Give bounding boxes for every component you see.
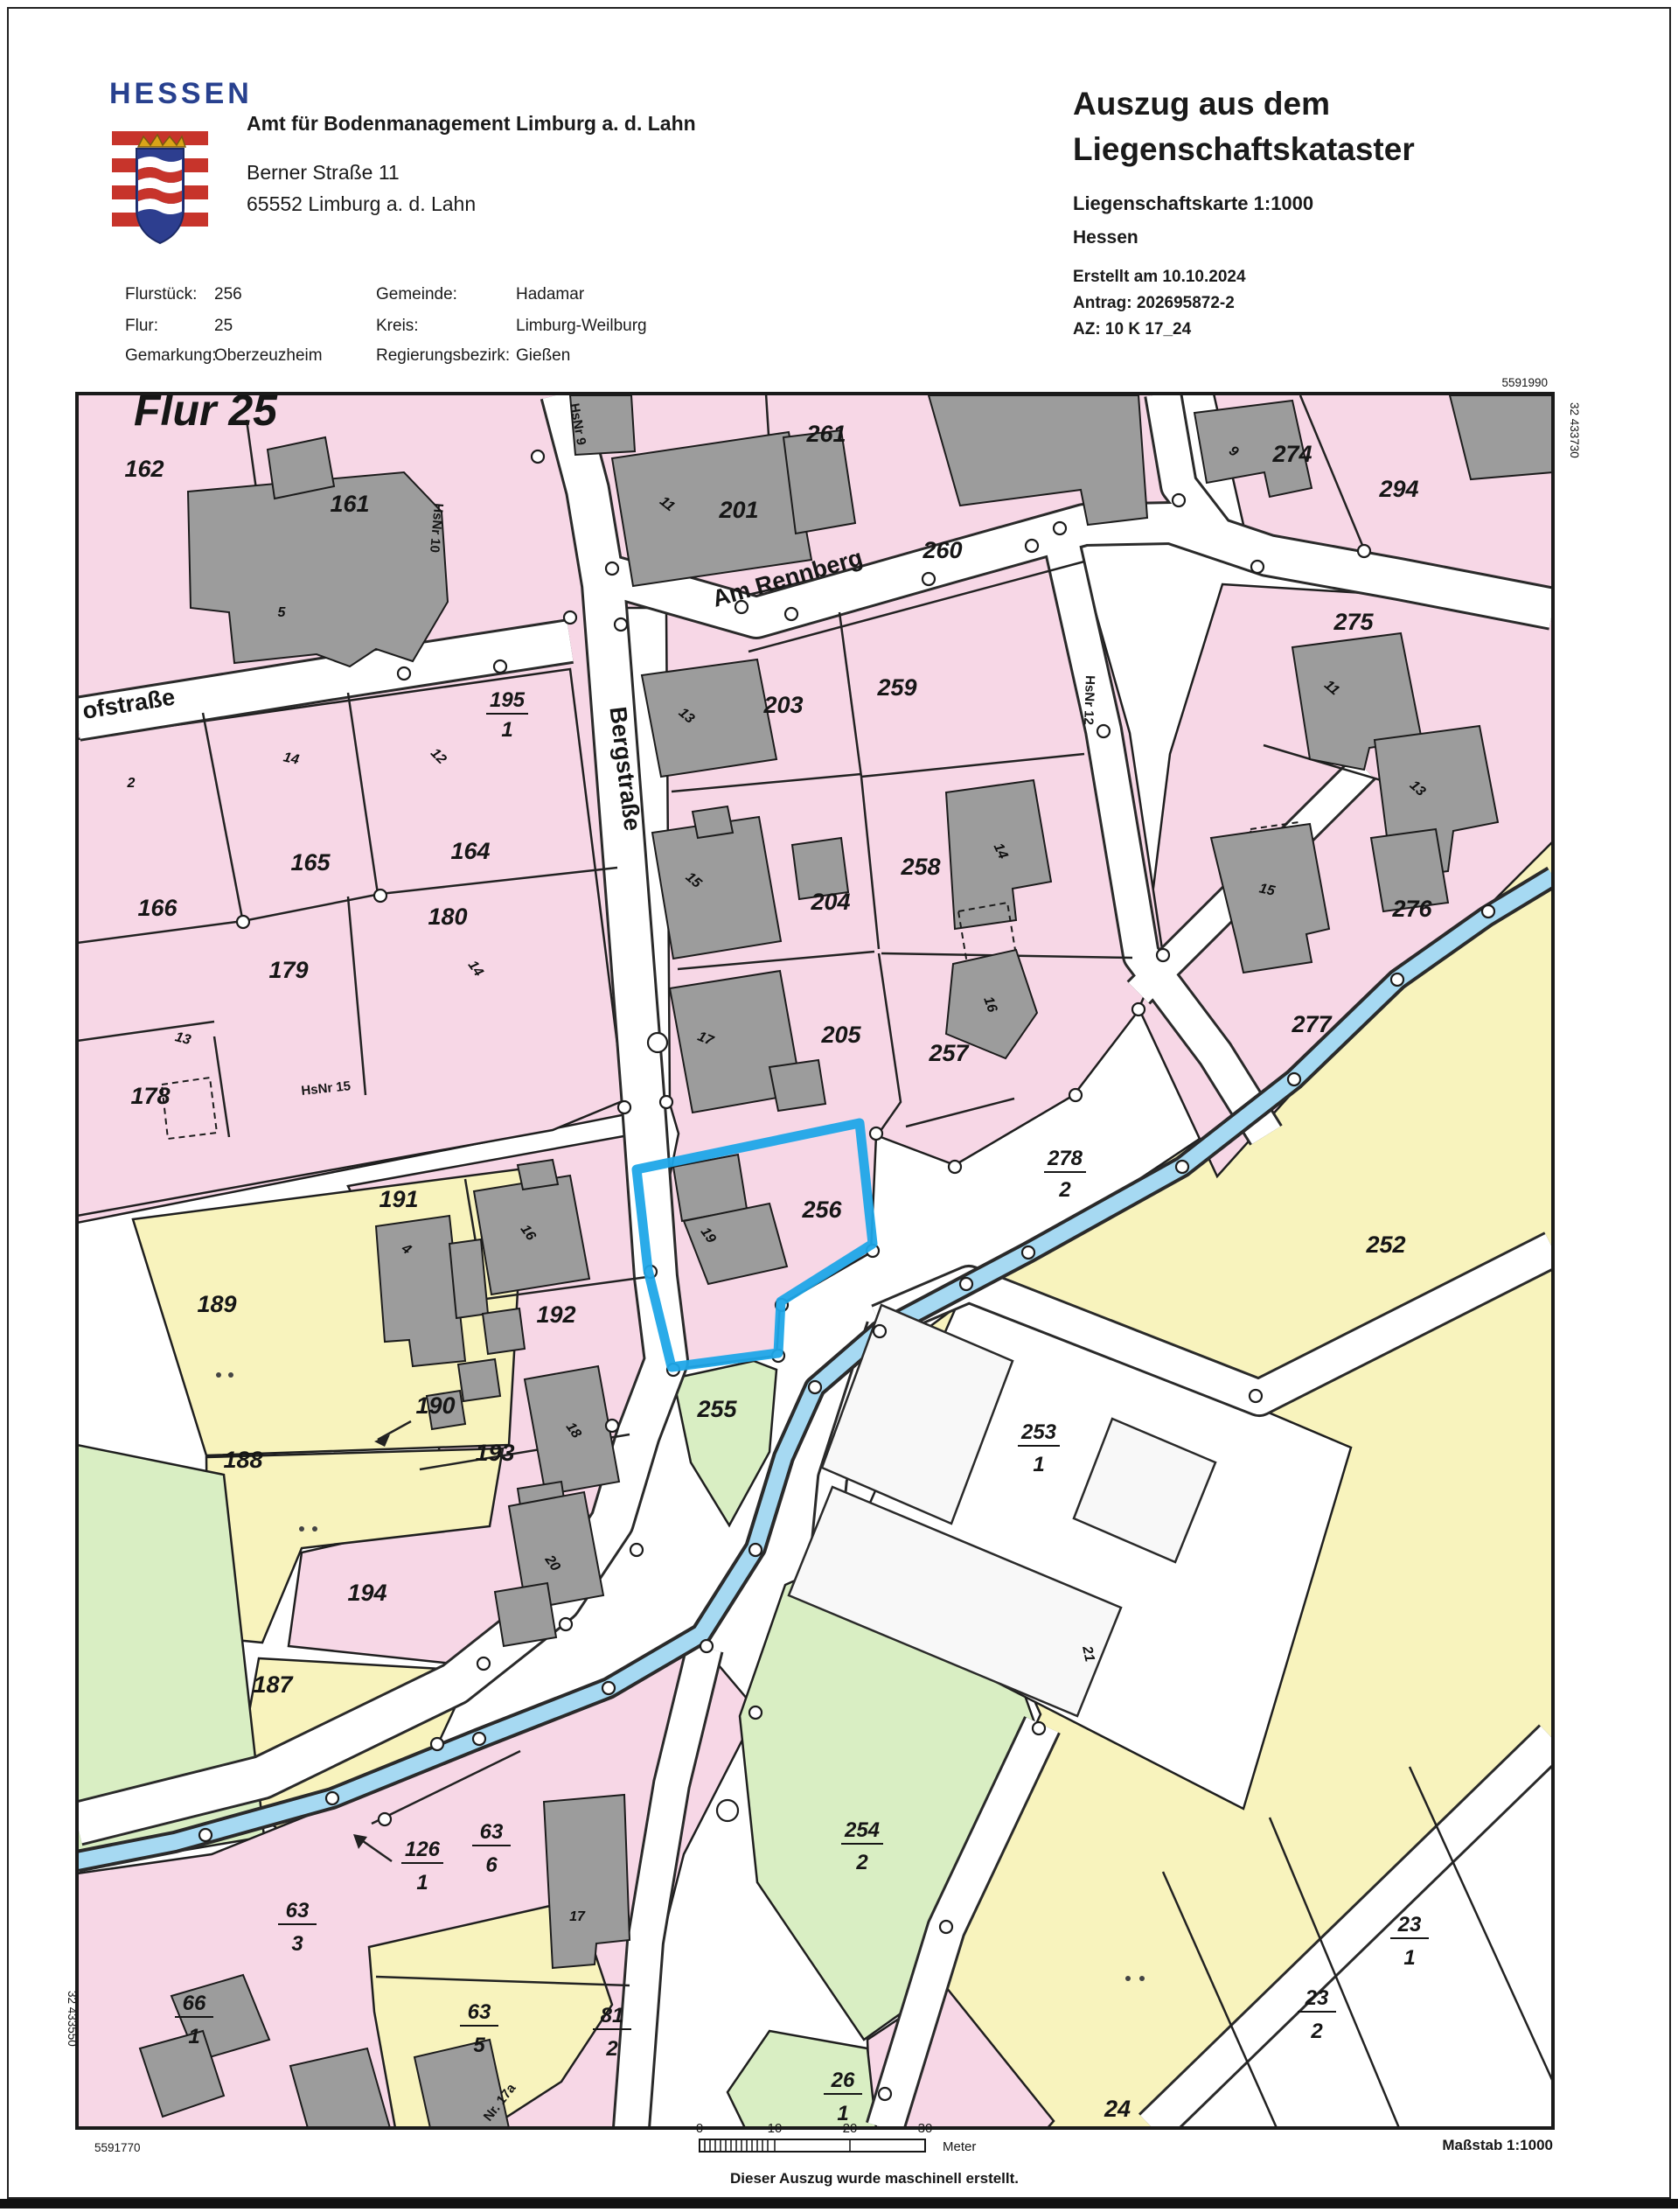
map-content: Flur 25 162 161 201 261 260 274 294 275 … xyxy=(77,386,1553,2128)
parcel-label-24: 24 xyxy=(1104,2096,1131,2122)
parcel-label-166: 166 xyxy=(137,895,178,921)
parcel-label-81-den: 2 xyxy=(605,2037,618,2061)
building-label-17-63-6: 17 xyxy=(569,1909,586,1924)
scale-tick-20: 20 xyxy=(843,2121,858,2136)
parcel-label-192: 192 xyxy=(536,1301,575,1328)
coord-right-top: 32 433730 xyxy=(1568,402,1581,458)
parcel-label-253-num: 253 xyxy=(1020,1420,1057,1444)
parcel-label-294: 294 xyxy=(1378,476,1418,502)
parcel-label-178: 178 xyxy=(130,1083,170,1109)
parcel-label-260: 260 xyxy=(922,537,962,563)
parcel-label-188: 188 xyxy=(223,1447,262,1473)
building-label-5: 5 xyxy=(278,605,287,620)
parcel-label-201: 201 xyxy=(718,497,758,523)
parcel-label-180: 180 xyxy=(428,904,467,930)
street-label-hsnr12: HsNr 12 xyxy=(1081,675,1097,725)
parcel-label-161: 161 xyxy=(330,491,369,517)
parcel-label-162: 162 xyxy=(124,456,164,482)
parcel-label-63-5-den: 5 xyxy=(473,2034,485,2057)
parcel-label-261: 261 xyxy=(805,421,846,447)
parcel-label-194: 194 xyxy=(347,1580,386,1606)
parcel-label-191: 191 xyxy=(379,1186,418,1212)
parcel-label-63-3-den: 3 xyxy=(291,1932,303,1956)
parcel-label-274: 274 xyxy=(1271,441,1312,467)
scale-unit: Meter xyxy=(943,2139,976,2154)
parcel-label-258: 258 xyxy=(900,854,940,880)
coord-left-bottom: 32 433550 xyxy=(66,1991,79,2047)
parcel-label-205: 205 xyxy=(820,1022,861,1048)
machine-note: Dieser Auszug wurde maschinell erstellt. xyxy=(730,2170,1019,2187)
parcel-label-165: 165 xyxy=(290,849,331,876)
parcel-label-190: 190 xyxy=(415,1392,455,1419)
parcel-label-254-den: 2 xyxy=(855,1851,868,1874)
page-bottom-rule xyxy=(0,2199,1678,2209)
parcel-label-203: 203 xyxy=(762,692,803,718)
coord-top-right: 5591990 xyxy=(1501,376,1548,389)
parcel-label-26-num: 26 xyxy=(831,2069,855,2092)
parcel-label-66-den: 1 xyxy=(188,2025,199,2048)
scale-tick-0: 0 xyxy=(696,2121,703,2136)
scale-tick-30: 30 xyxy=(918,2121,933,2136)
parcel-label-23-2-num: 23 xyxy=(1305,1986,1329,2010)
parcel-label-195-num: 195 xyxy=(490,688,526,712)
massstab-label: Maßstab 1:1000 xyxy=(1442,2137,1553,2153)
parcel-label-63-6-num: 63 xyxy=(480,1820,504,1844)
parcel-label-189: 189 xyxy=(197,1291,236,1317)
parcel-label-277: 277 xyxy=(1291,1011,1333,1037)
building-label-2-166: 2 xyxy=(127,776,136,791)
parcel-label-278-den: 2 xyxy=(1058,1178,1071,1202)
parcel-label-253-den: 1 xyxy=(1033,1453,1044,1476)
cadastral-map: Flur 25 162 161 201 261 260 274 294 275 … xyxy=(0,0,1678,2212)
parcel-label-275: 275 xyxy=(1333,609,1374,635)
parcel-label-23-1-num: 23 xyxy=(1397,1913,1422,1936)
parcel-label-195-den: 1 xyxy=(501,718,512,742)
parcel-label-278-num: 278 xyxy=(1047,1147,1083,1170)
parcel-label-276: 276 xyxy=(1391,896,1432,922)
parcel-label-254-num: 254 xyxy=(844,1818,880,1842)
parcel-label-126-num: 126 xyxy=(405,1838,441,1861)
coord-bottom-left: 5591770 xyxy=(94,2141,141,2154)
parcel-label-23-2-den: 2 xyxy=(1310,2020,1323,2043)
parcel-label-81-num: 81 xyxy=(601,2004,624,2027)
parcel-label-63-3-num: 63 xyxy=(286,1899,310,1922)
parcel-label-63-5-num: 63 xyxy=(468,2000,491,2024)
parcel-label-164: 164 xyxy=(450,838,490,864)
parcel-label-63-6-den: 6 xyxy=(485,1853,498,1877)
parcel-label-193: 193 xyxy=(475,1440,514,1466)
parcel-label-126-den: 1 xyxy=(416,1871,428,1895)
parcel-label-256: 256 xyxy=(801,1197,842,1223)
parcel-label-255: 255 xyxy=(696,1396,737,1422)
parcel-label-252: 252 xyxy=(1365,1232,1405,1258)
parcel-label-187: 187 xyxy=(253,1671,294,1698)
parcel-label-204: 204 xyxy=(810,889,850,915)
parcel-label-259: 259 xyxy=(876,674,916,701)
parcel-label-179: 179 xyxy=(268,957,308,983)
parcel-label-66-num: 66 xyxy=(183,1992,206,2015)
parcel-label-257: 257 xyxy=(928,1040,970,1066)
building-label-14-165: 14 xyxy=(282,750,300,767)
cadastral-extract-page: HESSEN Amt für Bodenmanagement Limburg a… xyxy=(0,0,1678,2212)
scale-tick-10: 10 xyxy=(768,2121,783,2136)
parcel-label-23-1-den: 1 xyxy=(1403,1946,1415,1970)
